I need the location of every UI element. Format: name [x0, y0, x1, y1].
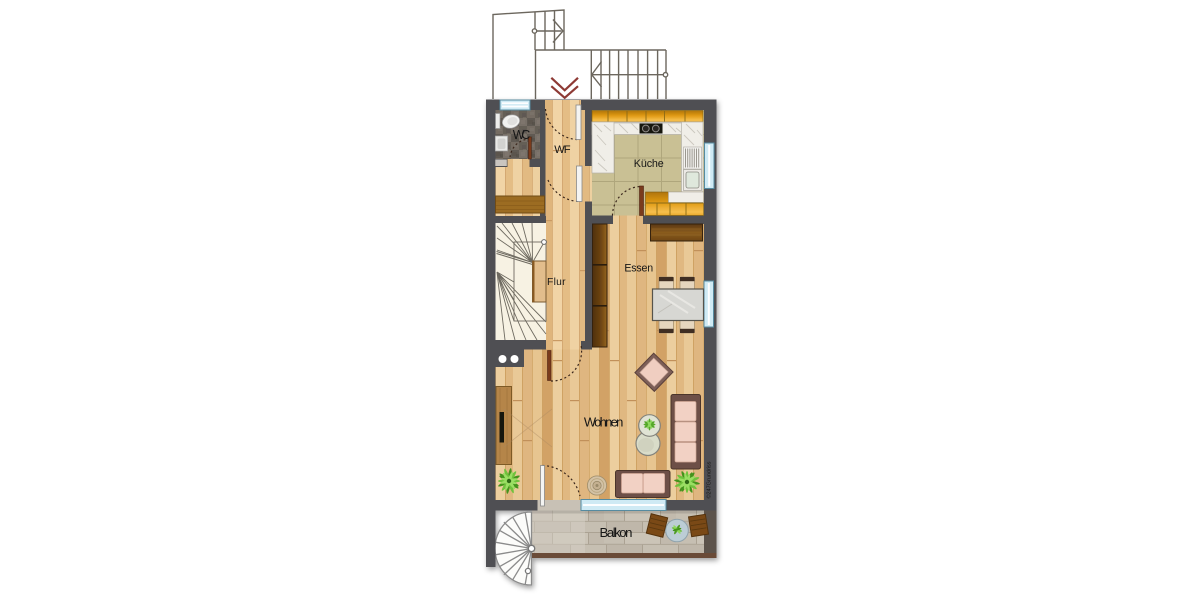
svg-text:WF: WF: [554, 144, 571, 156]
svg-text:Küche: Küche: [634, 158, 664, 170]
svg-text:Wohnen: Wohnen: [584, 415, 623, 430]
svg-text:Essen: Essen: [624, 263, 653, 275]
svg-text:Balkon: Balkon: [600, 525, 633, 540]
svg-text:Flur: Flur: [547, 277, 566, 288]
svg-text:©247Grundriss: ©247Grundriss: [706, 461, 713, 498]
svg-text:WC: WC: [513, 128, 531, 142]
